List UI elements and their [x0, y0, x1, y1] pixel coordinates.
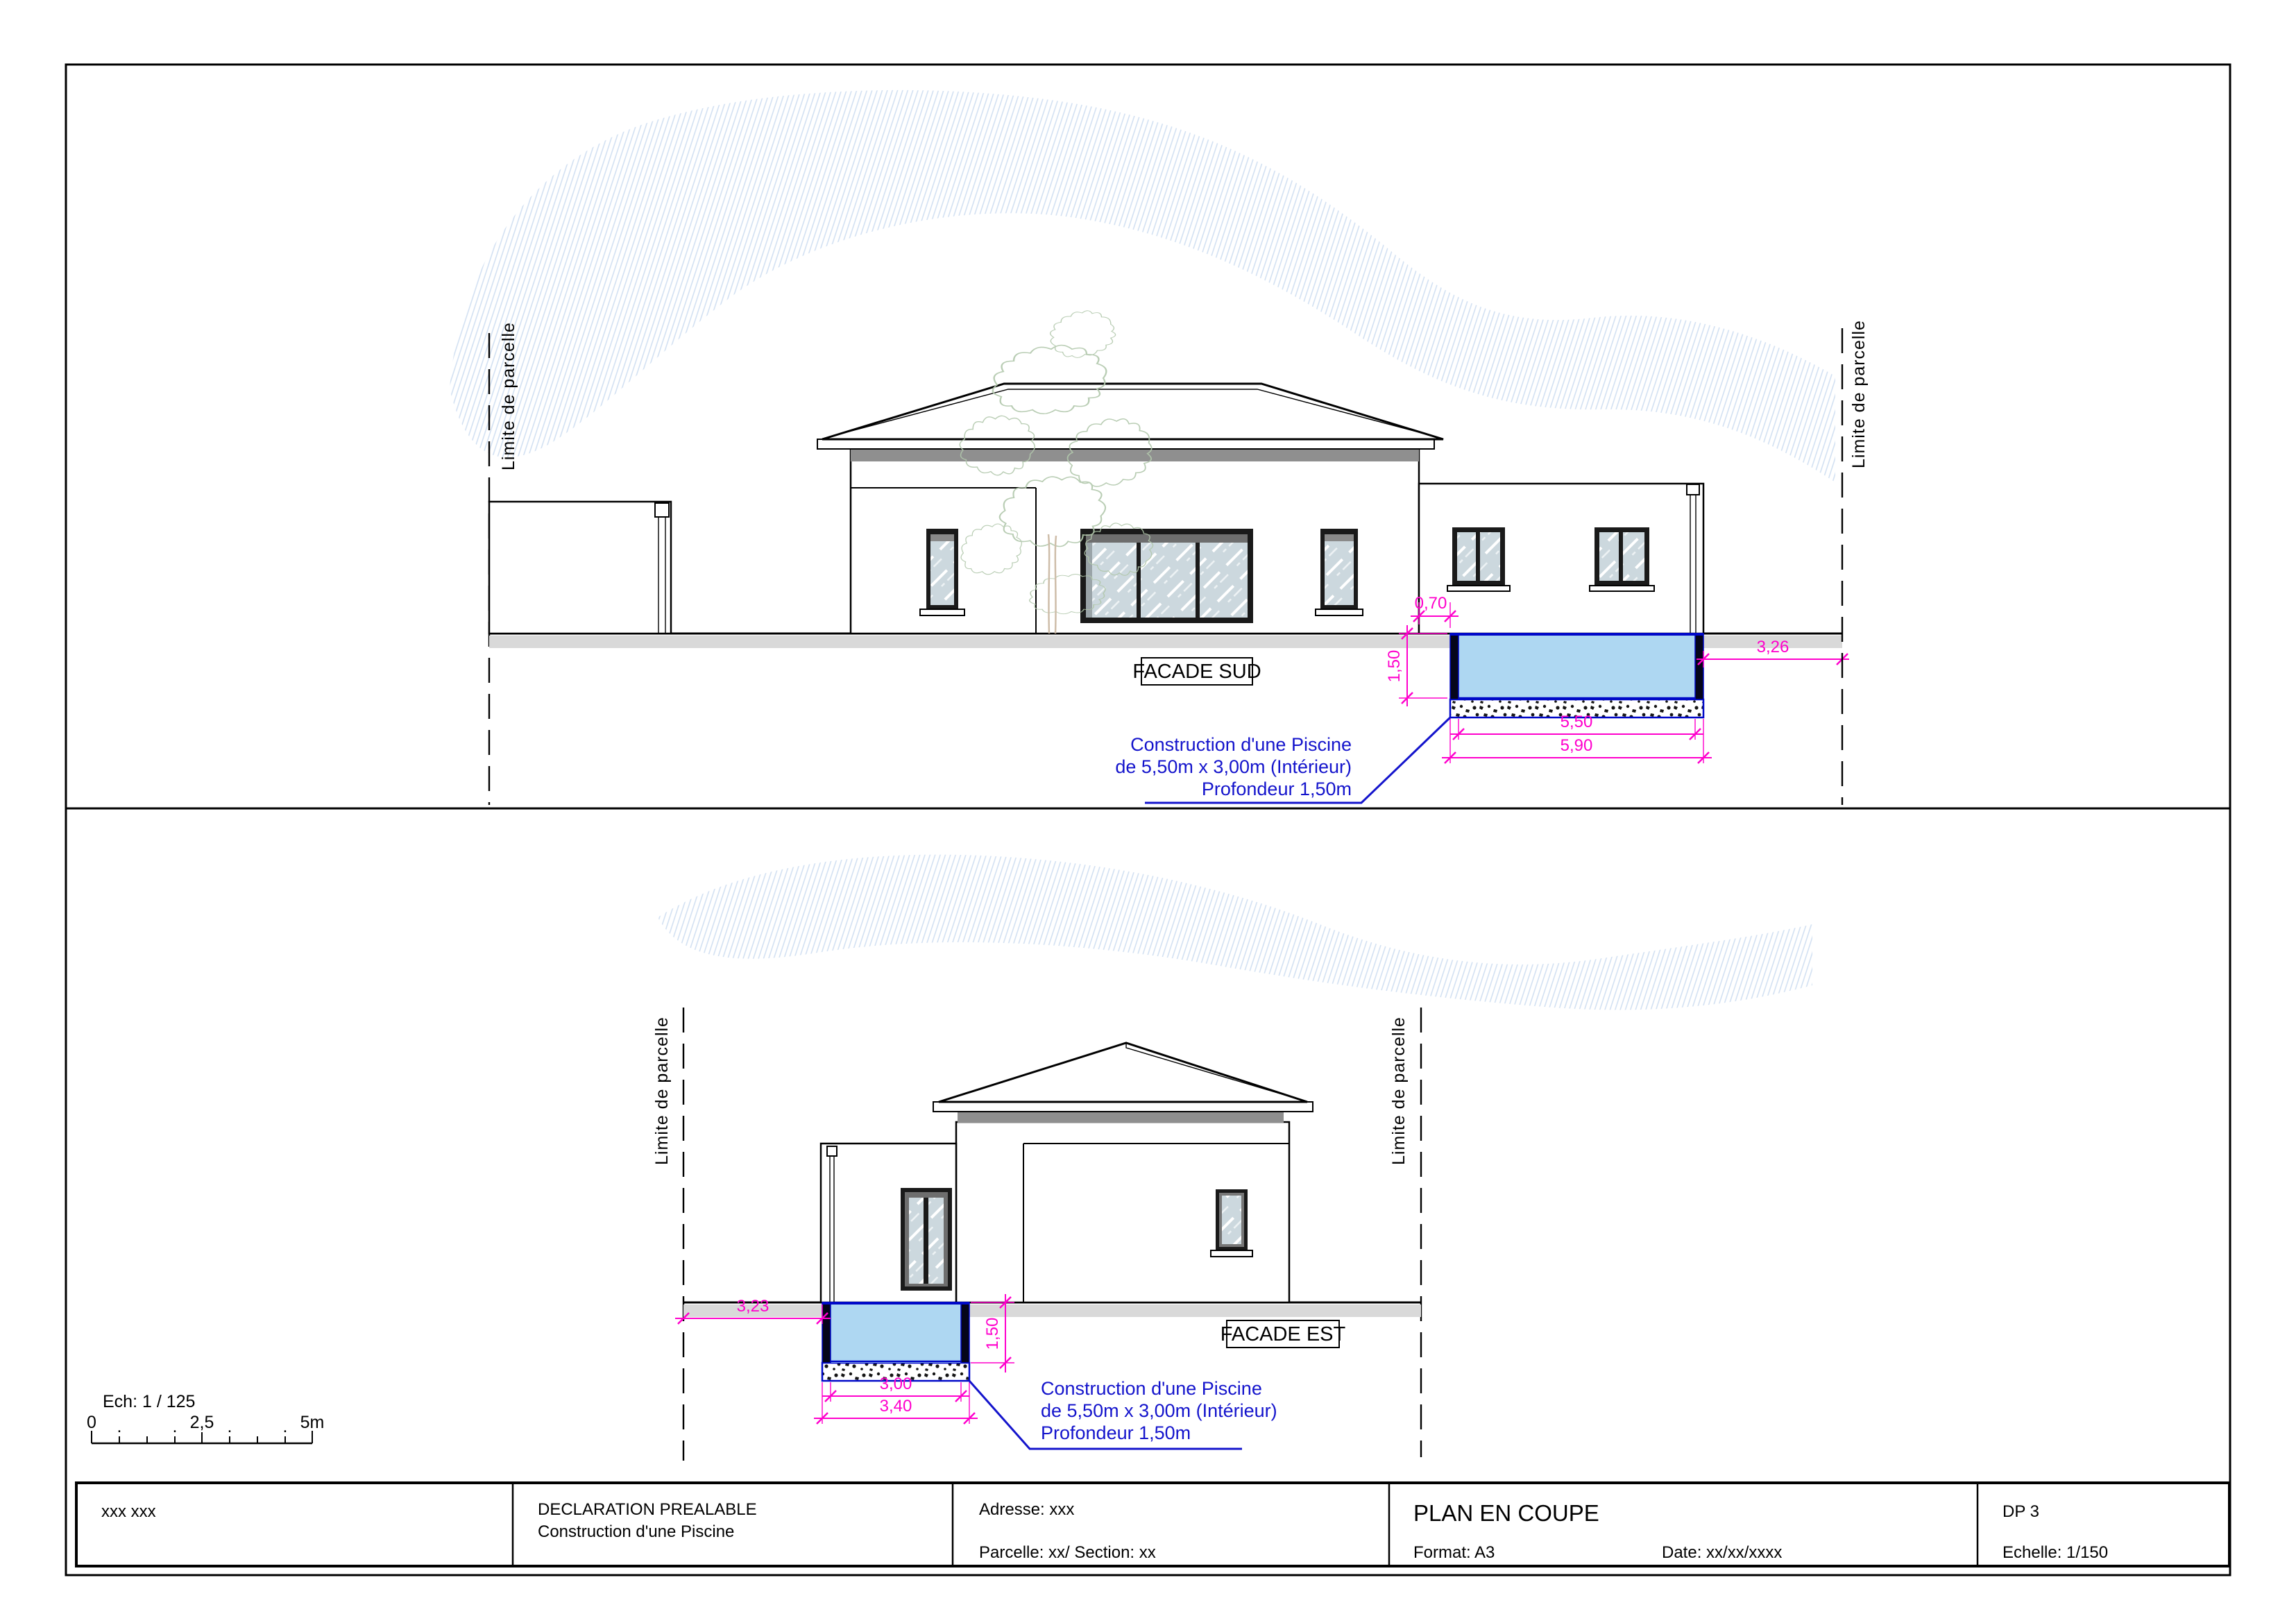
pool-annotation-sud: Construction d'une Piscine de 5,50m x 3,… — [1115, 717, 1450, 803]
facade-sud-drawing: Limite de parcelle — [450, 90, 1869, 805]
window-sill — [1447, 586, 1510, 591]
dim-depth: 1,50 — [1385, 650, 1404, 683]
sky-swoosh — [450, 90, 1835, 482]
format-cell: Format: A3 — [1413, 1543, 1495, 1562]
annotation-line-3: Profondeur 1,50m — [1041, 1422, 1191, 1443]
parcel-limit-label-right: Limite de parcelle — [1389, 1017, 1409, 1165]
annotation-line-2: de 5,50m x 3,00m (Intérieur) — [1041, 1400, 1277, 1421]
title-block: xxx xxx DECLARATION PREALABLE Constructi… — [76, 1483, 2229, 1566]
pool-section-est — [822, 1302, 969, 1381]
fascia — [933, 1102, 1313, 1112]
scale-dot: . — [173, 1417, 178, 1436]
sheet-number: DP 3 — [2002, 1502, 2039, 1521]
pool-wall-right — [961, 1302, 969, 1363]
dim-exterior-width: 3,40 — [880, 1397, 912, 1416]
wing-window-left — [1447, 527, 1510, 591]
scale-tick-mid: 2,5 — [190, 1413, 214, 1432]
svg-text:FACADE SUD: FACADE SUD — [1132, 661, 1261, 683]
fascia — [817, 439, 1434, 449]
eave-shadow — [851, 449, 1419, 461]
window-sill — [1316, 609, 1363, 615]
dim-to-limit: 3,23 — [737, 1297, 769, 1316]
house-east — [821, 1043, 1313, 1302]
scale-dot: . — [283, 1417, 288, 1436]
page-border — [66, 65, 2230, 1575]
annotation-line-1: Construction d'une Piscine — [1130, 734, 1352, 755]
scale-tick-0: 0 — [87, 1413, 96, 1432]
annotation-line-3: Profondeur 1,50m — [1202, 779, 1352, 799]
roof-inner-line — [833, 389, 1432, 436]
roof-inner-line — [950, 1043, 1296, 1098]
address-cell: Adresse: xxx — [979, 1500, 1074, 1519]
wing-window-right — [1590, 527, 1654, 591]
fence-post-cap — [655, 503, 669, 517]
roof — [939, 1043, 1307, 1102]
window-sill — [920, 609, 964, 615]
pool-section-sud — [1450, 634, 1703, 717]
dim-interior-width: 3,00 — [880, 1375, 912, 1393]
plan-sheet: Limite de parcelle — [0, 0, 2296, 1623]
window-tall — [901, 1188, 952, 1291]
facade-sud-label: FACADE SUD — [1132, 658, 1261, 685]
roof — [822, 384, 1443, 439]
fence-wall — [489, 502, 671, 634]
plan-drawing: Limite de parcelle — [0, 0, 2296, 1623]
eave-shadow — [958, 1112, 1284, 1123]
window-sill — [1590, 586, 1654, 591]
pool-wall-left — [1450, 634, 1459, 699]
procedure-title: DECLARATION PREALABLE — [538, 1500, 757, 1519]
parcel-limit-label-right: Limite de parcelle — [1849, 320, 1869, 468]
scale-dot: . — [228, 1417, 232, 1436]
author-cell: xxx xxx — [101, 1502, 156, 1521]
window-narrow — [1211, 1189, 1252, 1257]
ground-band — [683, 1305, 1421, 1317]
parcel-limit-label-left: Limite de parcelle — [652, 1017, 672, 1165]
svg-text:FACADE EST: FACADE EST — [1221, 1323, 1346, 1345]
dim-house-offset: 0,70 — [1415, 594, 1447, 613]
window-narrow-right — [1316, 529, 1363, 615]
window-narrow-left — [920, 529, 964, 615]
dim-interior-length: 5,50 — [1561, 713, 1593, 731]
parcel-limit-label-left: Limite de parcelle — [499, 322, 518, 470]
dim-exterior-length: 5,90 — [1561, 736, 1593, 755]
scale-cell: Echelle: 1/150 — [2002, 1543, 2108, 1562]
pool-water — [1459, 635, 1695, 698]
scale-dot: . — [117, 1417, 122, 1436]
annotation-line-2: de 5,50m x 3,00m (Intérieur) — [1115, 756, 1352, 777]
scale-bar: Ech: 1 / 125 0 . . 2,5 . . 5m — [87, 1392, 324, 1443]
pool-water — [831, 1304, 961, 1363]
date-cell: Date: xx/xx/xxxx — [1662, 1543, 1782, 1562]
window-sill — [1211, 1250, 1252, 1257]
sky-swoosh — [658, 855, 1812, 1010]
house-south — [817, 384, 1703, 634]
facade-est-drawing: Limite de parcelle Limite de parcelle — [87, 855, 1812, 1461]
scale-tick-end: 5m — [300, 1413, 325, 1432]
pool-wall-left — [822, 1302, 831, 1363]
pool-annotation-est: Construction d'une Piscine de 5,50m x 3,… — [969, 1378, 1277, 1449]
dim-to-limit: 3,26 — [1757, 638, 1789, 656]
procedure-subtitle: Construction d'une Piscine — [538, 1522, 734, 1541]
scale-label: Ech: 1 / 125 — [103, 1392, 195, 1411]
parcel-cell: Parcelle: xx/ Section: xx — [979, 1543, 1156, 1562]
sheet-title: PLAN EN COUPE — [1413, 1500, 1599, 1526]
pool-wall-right — [1695, 634, 1703, 699]
dim-depth: 1,50 — [983, 1318, 1002, 1350]
facade-est-label: FACADE EST — [1221, 1320, 1346, 1348]
annotation-line-1: Construction d'une Piscine — [1041, 1378, 1262, 1399]
sliding-bay-window — [1080, 529, 1253, 623]
